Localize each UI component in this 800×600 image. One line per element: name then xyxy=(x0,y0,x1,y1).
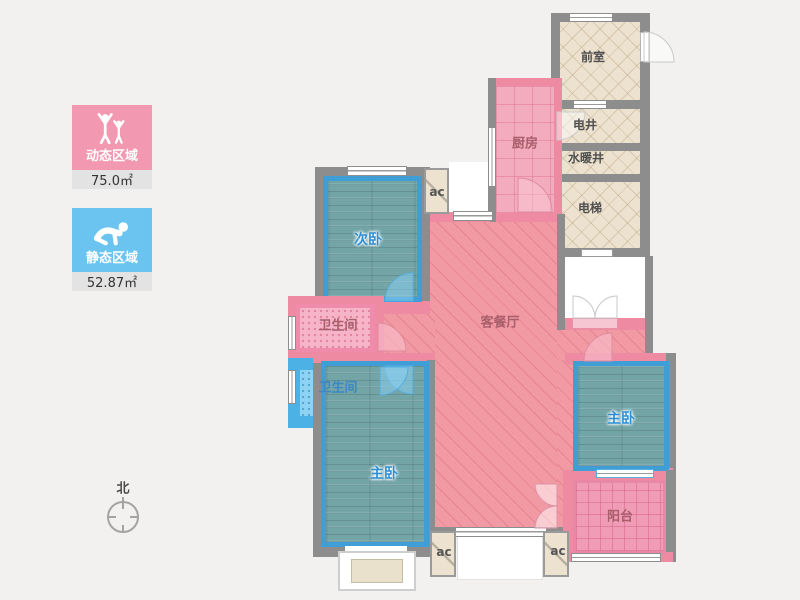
label-second-bedroom: 次卧 xyxy=(354,233,382,247)
living-bottom-window xyxy=(455,527,547,537)
label-plumbing-shaft: 水暖井 xyxy=(568,152,604,164)
balcony-window xyxy=(571,553,661,562)
label-bathroom-2: 卫生间 xyxy=(318,382,357,395)
kitchen-window xyxy=(488,127,496,187)
label-electric-shaft: 电井 xyxy=(573,119,597,131)
people-standing-icon xyxy=(90,111,134,145)
master-left-bay-sill xyxy=(351,559,403,583)
compass-icon xyxy=(108,497,138,532)
room-elevator xyxy=(560,182,640,248)
label-front-room: 前室 xyxy=(581,51,605,63)
legend-dynamic-card: 动态区域 xyxy=(72,105,152,170)
entry-door-sill xyxy=(572,318,618,329)
label-ac-bottom-left: ac xyxy=(436,546,451,558)
legend-static-label: 静态区域 xyxy=(86,247,138,266)
shaft-window xyxy=(573,100,607,109)
bathroom2-window xyxy=(288,370,296,404)
front-room-window xyxy=(569,13,613,22)
light-well-area xyxy=(449,162,488,212)
bottom-bay-area xyxy=(457,536,543,580)
label-kitchen: 厨房 xyxy=(512,138,538,151)
living-corridor xyxy=(375,314,435,356)
living-top-window xyxy=(453,211,493,221)
legend-static-area: 52.87㎡ xyxy=(72,272,152,291)
bathroom1-window xyxy=(288,316,296,350)
label-elevator: 电梯 xyxy=(578,202,602,214)
label-ac-bottom-right: ac xyxy=(550,545,565,557)
master-right-window xyxy=(596,469,654,478)
room-living-dining-main xyxy=(430,222,557,527)
living-right-wall xyxy=(557,214,565,330)
person-crawling-icon xyxy=(89,217,135,247)
front-room-door-leaf xyxy=(640,32,649,62)
label-bathroom-1: 卫生间 xyxy=(318,320,357,333)
label-master-right: 主卧 xyxy=(607,412,635,426)
label-ac-top: ac xyxy=(429,186,444,198)
balcony-east-wall xyxy=(666,470,676,562)
label-compass-north: 北 xyxy=(116,483,129,496)
second-bedroom-window xyxy=(347,166,407,176)
legend-dynamic-area: 75.0㎡ xyxy=(72,170,152,189)
label-balcony: 阳台 xyxy=(607,511,633,524)
legend-dynamic-label: 动态区域 xyxy=(86,145,138,164)
label-master-left: 主卧 xyxy=(370,467,398,481)
entry-corridor-area xyxy=(565,257,645,318)
legend-static-card: 静态区域 xyxy=(72,208,152,272)
elevator-door xyxy=(581,249,613,257)
floorplan-canvas: 前室 电井 水暖井 电梯 厨房 次卧 客餐厅 卫生间 卫生间 主卧 主卧 阳台 … xyxy=(0,0,800,600)
label-living-dining: 客餐厅 xyxy=(480,317,519,330)
